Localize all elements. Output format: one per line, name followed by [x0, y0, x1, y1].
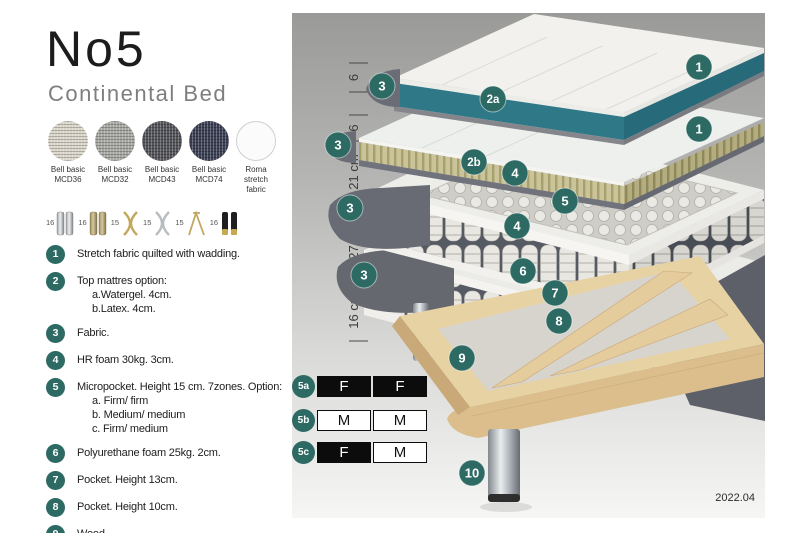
fabric-swatch-icon: [142, 121, 182, 161]
product-sheet: No5 Continental Bed Bell basicMCD36 Bell…: [0, 0, 800, 533]
badge-6: 6: [510, 258, 536, 284]
spec-item-2: 2 Top mattres option: a.Watergel. 4cm. b…: [46, 272, 288, 316]
spec-number-badge: 8: [46, 498, 65, 517]
fabric-swatches: Bell basicMCD36 Bell basicMCD32 Bell bas…: [46, 121, 288, 195]
badge-3: 3: [337, 195, 363, 221]
fabric-swatch-icon: [95, 121, 135, 161]
svg-text:4: 4: [511, 166, 519, 181]
spec-item-8: 8 Pocket. Height 10cm.: [46, 498, 288, 517]
spec-list: 1 Stretch fabric quilted with wadding. 2…: [46, 245, 288, 533]
spec-number-badge: 2: [46, 272, 65, 291]
svg-text:5: 5: [561, 194, 568, 209]
firmness-cell: M: [317, 410, 371, 431]
swatch-mcd74: Bell basicMCD74: [187, 121, 231, 195]
leg-icon-curved-gold: [120, 210, 141, 237]
badge-2a: 2a: [480, 86, 506, 112]
dim-label-6b: 6: [346, 124, 361, 131]
badge-4: 4: [504, 213, 530, 239]
svg-text:6: 6: [519, 264, 526, 279]
firmness-row-5b: 5b M M: [292, 409, 427, 432]
badge-8: 8: [546, 308, 572, 334]
badge-2b: 2b: [461, 149, 487, 175]
leg-options: 16 16 15: [46, 205, 288, 237]
leg-icon-curved-silver: [152, 210, 173, 237]
leg-option-curved-gold: 15: [111, 210, 141, 237]
product-title: No5: [46, 22, 288, 76]
product-subtitle: Continental Bed: [48, 81, 288, 107]
badge-5: 5: [552, 188, 578, 214]
dim-label-6a: 6: [346, 74, 361, 81]
badge-1: 1: [686, 116, 712, 142]
svg-text:3: 3: [360, 268, 367, 283]
spec-number-badge: 5: [46, 378, 65, 397]
leg-option-curved-silver: 15: [143, 210, 173, 237]
firmness-row-5c: 5c F M: [292, 441, 427, 464]
firmness-badge-5c: 5c: [292, 441, 315, 464]
version-label: 2022.04: [715, 492, 755, 504]
spec-item-7: 7 Pocket. Height 13cm.: [46, 471, 288, 490]
badge-3: 3: [325, 132, 351, 158]
badge-10: 10: [459, 460, 485, 486]
firmness-badge-5b: 5b: [292, 409, 315, 432]
swatch-mcd36: Bell basicMCD36: [46, 121, 90, 195]
swatch-mcd43: Bell basicMCD43: [140, 121, 184, 195]
spec-number-badge: 7: [46, 471, 65, 490]
badge-4: 4: [502, 160, 528, 186]
leg-icon-cylinder-chrome: [55, 210, 76, 237]
leg-icon-hairpin-gold: [185, 210, 208, 237]
firmness-cell: F: [317, 442, 371, 463]
spec-number-badge: 6: [46, 444, 65, 463]
svg-text:1: 1: [695, 60, 702, 75]
svg-text:4: 4: [513, 219, 521, 234]
svg-text:3: 3: [334, 138, 341, 153]
firmness-row-5a: 5a F F: [292, 375, 427, 398]
leg-icon-cylinder-brass: [88, 210, 109, 237]
leg-option-hairpin: 15: [175, 210, 207, 237]
svg-text:3: 3: [378, 79, 385, 94]
svg-text:10: 10: [465, 466, 479, 481]
spec-number-badge: 1: [46, 245, 65, 264]
spec-item-9: 9 Wood.: [46, 525, 288, 533]
fabric-swatch-icon: [189, 121, 229, 161]
leg-option-black-gold: 16: [210, 210, 240, 237]
front-metal-leg: [480, 429, 532, 512]
firmness-cell: M: [373, 442, 427, 463]
firmness-cell: M: [373, 410, 427, 431]
svg-text:2b: 2b: [467, 157, 480, 169]
svg-text:2a: 2a: [487, 94, 500, 106]
badge-7: 7: [542, 280, 568, 306]
leg-option-chrome: 16: [46, 210, 76, 237]
firmness-badge-5a: 5a: [292, 375, 315, 398]
svg-text:7: 7: [551, 286, 558, 301]
spec-number-badge: 4: [46, 351, 65, 370]
badge-3: 3: [369, 73, 395, 99]
spec-number-badge: 3: [46, 324, 65, 343]
fabric-swatch-icon: [236, 121, 276, 161]
firmness-cell: F: [373, 376, 427, 397]
badge-1: 1: [686, 54, 712, 80]
badge-9: 9: [449, 345, 475, 371]
left-column: No5 Continental Bed Bell basicMCD36 Bell…: [46, 22, 288, 533]
swatch-mcd32: Bell basicMCD32: [93, 121, 137, 195]
swatch-roma: Romastretch fabric: [234, 121, 278, 195]
fabric-swatch-icon: [48, 121, 88, 161]
firmness-cell: F: [317, 376, 371, 397]
spec-number-badge: 9: [46, 525, 65, 533]
svg-text:8: 8: [555, 314, 562, 329]
svg-text:1: 1: [695, 122, 702, 137]
svg-text:3: 3: [346, 201, 353, 216]
spec-item-4: 4 HR foam 30kg. 3cm.: [46, 351, 288, 370]
spec-item-1: 1 Stretch fabric quilted with wadding.: [46, 245, 288, 264]
spec-item-3: 3 Fabric.: [46, 324, 288, 343]
spec-item-6: 6 Polyurethane foam 25kg. 2cm.: [46, 444, 288, 463]
badge-3: 3: [351, 262, 377, 288]
diagram-panel: 6 6 21 cm 27 cm 16 cm: [292, 13, 765, 518]
spec-item-5: 5 Micropocket. Height 15 cm. 7zones. Opt…: [46, 378, 288, 436]
leg-icon-cylinder-black-gold: [219, 210, 240, 237]
leg-option-brass: 16: [78, 210, 108, 237]
svg-text:9: 9: [458, 351, 465, 366]
